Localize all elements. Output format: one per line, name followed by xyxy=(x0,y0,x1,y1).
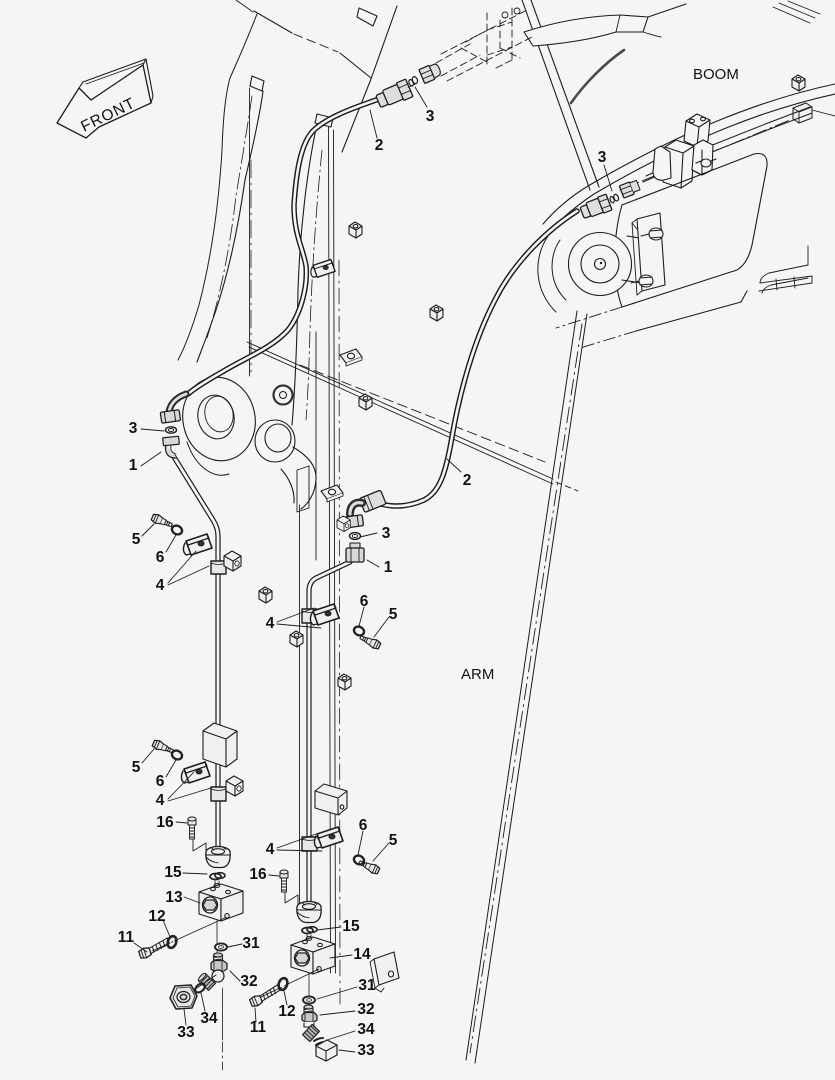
svg-text:3: 3 xyxy=(598,149,607,166)
svg-text:16: 16 xyxy=(249,866,267,883)
svg-text:1: 1 xyxy=(129,457,138,474)
svg-text:15: 15 xyxy=(164,864,182,881)
svg-text:2: 2 xyxy=(463,472,472,489)
svg-text:34: 34 xyxy=(200,1010,218,1027)
svg-text:6: 6 xyxy=(360,593,369,610)
svg-text:11: 11 xyxy=(118,929,135,946)
svg-text:4: 4 xyxy=(266,841,275,858)
svg-text:33: 33 xyxy=(357,1042,375,1059)
svg-text:32: 32 xyxy=(357,1001,374,1018)
svg-text:3: 3 xyxy=(129,420,138,437)
svg-text:ARM: ARM xyxy=(461,666,494,683)
svg-text:4: 4 xyxy=(156,577,165,594)
svg-text:13: 13 xyxy=(165,889,183,906)
svg-text:5: 5 xyxy=(389,832,398,849)
svg-text:32: 32 xyxy=(240,973,257,990)
svg-text:4: 4 xyxy=(266,615,275,632)
svg-text:1: 1 xyxy=(384,559,393,576)
svg-text:6: 6 xyxy=(359,817,368,834)
svg-text:BOOM: BOOM xyxy=(693,66,739,83)
svg-text:12: 12 xyxy=(278,1003,295,1020)
svg-text:16: 16 xyxy=(156,814,174,831)
svg-text:31: 31 xyxy=(242,935,260,952)
svg-text:5: 5 xyxy=(132,531,141,548)
svg-text:14: 14 xyxy=(353,946,371,963)
svg-text:31: 31 xyxy=(358,977,376,994)
svg-text:3: 3 xyxy=(426,108,435,125)
svg-text:33: 33 xyxy=(177,1024,195,1041)
svg-text:4: 4 xyxy=(156,792,165,809)
svg-text:5: 5 xyxy=(389,606,398,623)
svg-text:6: 6 xyxy=(156,549,165,566)
svg-text:3: 3 xyxy=(382,525,391,542)
svg-text:12: 12 xyxy=(148,908,165,925)
svg-text:15: 15 xyxy=(342,918,360,935)
svg-text:2: 2 xyxy=(375,137,384,154)
svg-text:6: 6 xyxy=(156,773,165,790)
svg-text:11: 11 xyxy=(250,1019,267,1036)
svg-text:34: 34 xyxy=(357,1021,375,1038)
svg-text:5: 5 xyxy=(132,759,141,776)
